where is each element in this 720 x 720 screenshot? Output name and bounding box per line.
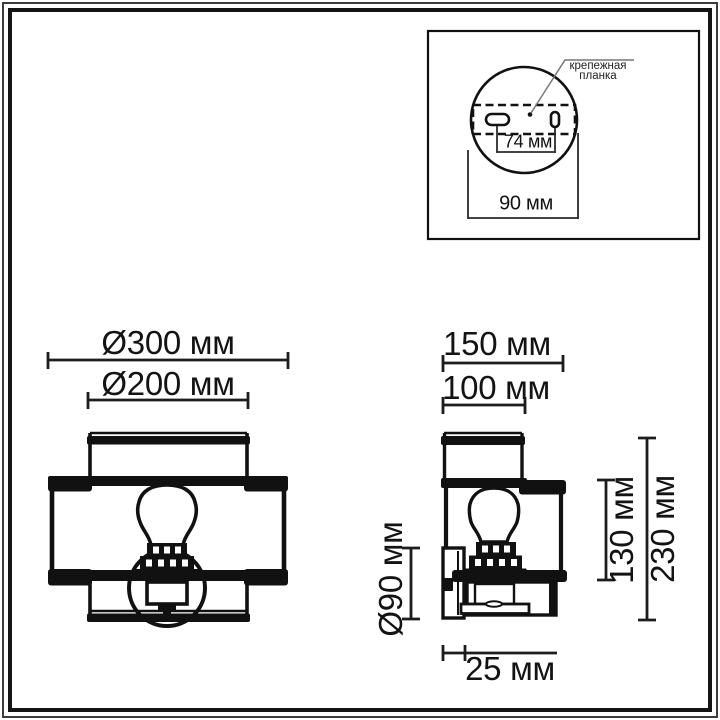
bulb-side	[469, 488, 518, 542]
screw-hole	[551, 112, 559, 127]
dim-label-diameter-90mm: Ø90 мм	[372, 521, 410, 636]
dim-label-diameter-300: Ø300 мм	[101, 324, 234, 362]
dim-label-130mm: 130 мм	[603, 476, 641, 584]
keyhole-slot	[486, 114, 509, 125]
dim-label-diameter-200: Ø200 мм	[101, 365, 234, 403]
mounting-plate-callout: крепежная планка	[570, 61, 627, 81]
socket-housing-side	[461, 582, 557, 615]
dim-label-150mm: 150 мм	[443, 325, 551, 363]
lamp-dimension-drawing: крепежная планка 74 мм 90 мм Ø300 мм Ø20…	[0, 0, 720, 720]
front-view-drawing	[48, 433, 288, 626]
dim-label-230mm: 230 мм	[644, 475, 682, 583]
dim-label-100mm: 100 мм	[442, 369, 550, 407]
socket-housing	[147, 582, 187, 604]
lamp-socket-side	[460, 542, 531, 578]
side-view-drawing	[441, 433, 567, 618]
bracket-clip	[444, 578, 453, 591]
dim-label-74mm: 74 мм	[504, 132, 552, 153]
dim-label-90mm: 90 мм	[499, 193, 553, 216]
lamp-socket	[131, 543, 203, 579]
bulb	[138, 485, 197, 545]
dim-label-25mm: 25 мм	[465, 650, 555, 688]
callout-line2: планка	[570, 71, 627, 81]
mounting-plate-inset	[428, 31, 699, 239]
